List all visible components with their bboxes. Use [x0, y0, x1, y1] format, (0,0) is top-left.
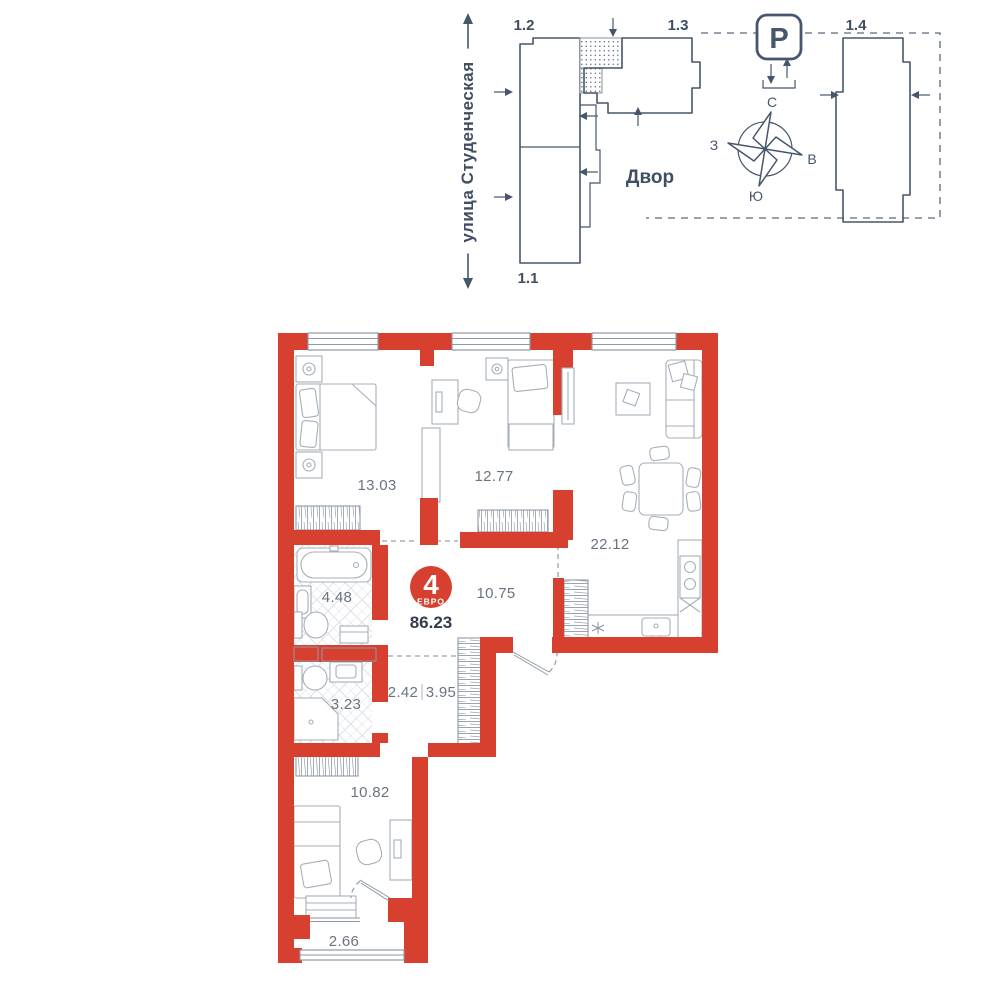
parking-label: P — [769, 23, 788, 55]
building-outline-12-11 — [520, 38, 580, 263]
chair-icon — [619, 465, 636, 486]
nightstand-icon — [296, 356, 322, 382]
bedroom3-furniture — [294, 754, 412, 918]
compass-blade-north — [753, 112, 771, 149]
room-area-label-hallway: 10.75 — [476, 585, 515, 602]
compass-icon: С Ю З В — [710, 94, 817, 204]
toilet-icon — [294, 612, 328, 638]
nightstand-icon — [296, 452, 322, 478]
entrance-arrow-icon — [634, 107, 642, 115]
entrance-arrow-icon — [505, 88, 513, 96]
single-bed-icon — [294, 806, 340, 898]
courtyard-label: Двор — [626, 167, 674, 188]
sink-icon — [330, 662, 362, 682]
radiator-icon — [478, 510, 548, 532]
tv-icon — [562, 368, 574, 424]
compass-blade-south — [759, 149, 777, 186]
chair-icon — [648, 516, 668, 531]
compass-blade-east — [765, 137, 802, 155]
entrance-arrow-icon — [911, 91, 919, 99]
sofa-icon — [666, 360, 702, 438]
building-outline-14 — [836, 38, 910, 222]
chair-icon — [354, 837, 383, 866]
living-furniture — [564, 360, 702, 640]
bathtub-icon — [297, 546, 371, 582]
chair-icon — [686, 491, 702, 512]
bedroom1-furniture — [296, 356, 376, 530]
street-direction: улица Студенческая — [458, 13, 477, 289]
room-area-label-bedroom2: 12.77 — [474, 468, 513, 485]
parking-icon: P — [757, 15, 801, 88]
building-label-13: 1.3 — [668, 17, 689, 34]
street-label: улица Студенческая — [458, 61, 477, 242]
building-label-12: 1.2 — [514, 17, 535, 34]
room-area-label-living: 22.12 — [590, 536, 629, 553]
window — [308, 333, 378, 350]
entrance-arrow-icon — [505, 193, 513, 201]
dining-table-icon — [619, 446, 701, 531]
badge-layout-type: ЕВРО — [417, 597, 445, 607]
entry-door-leaf — [513, 652, 557, 675]
toilet-icon — [294, 666, 327, 690]
nightstand-icon — [486, 358, 508, 380]
window — [592, 333, 676, 350]
window — [452, 333, 530, 350]
building-wing-outline — [580, 105, 600, 227]
room-area-label-bedroom3: 10.82 — [350, 784, 389, 801]
street-arrow-down-head-icon — [463, 278, 473, 289]
radiator-icon — [296, 506, 360, 530]
chest-of-drawers-icon — [306, 896, 356, 918]
floor-plan: 13.03 12.77 22.12 4.48 10.75 2.42 3.95 3… — [278, 333, 718, 963]
compass-blade-west — [728, 143, 765, 161]
chair-icon — [622, 491, 638, 512]
chair-icon — [649, 446, 670, 462]
wardrobe-icon — [458, 638, 482, 748]
kitchen-counter — [586, 540, 702, 640]
room-area-label-balcony: 2.66 — [329, 933, 359, 950]
total-area-label: 86.23 — [410, 613, 453, 632]
entrance-arrows — [494, 18, 930, 201]
washing-machine-icon — [340, 626, 368, 643]
site-plan: улица Студенческая — [458, 13, 940, 289]
coffee-table-icon — [616, 383, 650, 415]
chair-icon — [456, 388, 483, 415]
apartment-location-hatch — [580, 38, 622, 93]
room-area-label-bedroom1: 13.03 — [357, 477, 396, 494]
parking-ramp-bracket — [763, 80, 795, 88]
compass-west-label: З — [710, 137, 718, 153]
room-area-label-wardrobe: 3.95 — [426, 684, 456, 701]
badge-rooms-count: 4 — [423, 569, 439, 600]
wardrobe-panel-icon — [422, 428, 440, 502]
bedroom2-furniture — [422, 358, 554, 532]
single-bed-icon — [508, 360, 554, 450]
building-label-11: 1.1 — [518, 270, 539, 287]
fridge-icon — [564, 580, 588, 638]
building-label-14: 1.4 — [846, 17, 868, 34]
balcony-glazing — [300, 950, 404, 960]
double-bed-icon — [296, 384, 376, 450]
street-arrow-up-head-icon — [463, 13, 473, 24]
site-boundary-dashed — [646, 33, 940, 218]
compass-south-label: Ю — [749, 188, 763, 204]
floorplan-page: улица Студенческая — [0, 0, 1000, 1000]
chair-icon — [685, 467, 701, 488]
plan-canvas: улица Студенческая — [0, 0, 1000, 1000]
room-area-label-bathroom2: 3.23 — [331, 696, 361, 713]
balcony-door-leaf — [351, 880, 390, 901]
compass-east-label: В — [807, 151, 816, 167]
entrance-arrow-icon — [609, 29, 617, 37]
room-area-label-corridor: 2.42 — [388, 684, 418, 701]
room-area-label-bathroom1: 4.48 — [322, 589, 352, 606]
radiator-icon — [296, 754, 358, 776]
apartment-badge: 4 ЕВРО 86.23 — [410, 566, 453, 632]
compass-north-label: С — [767, 94, 777, 110]
